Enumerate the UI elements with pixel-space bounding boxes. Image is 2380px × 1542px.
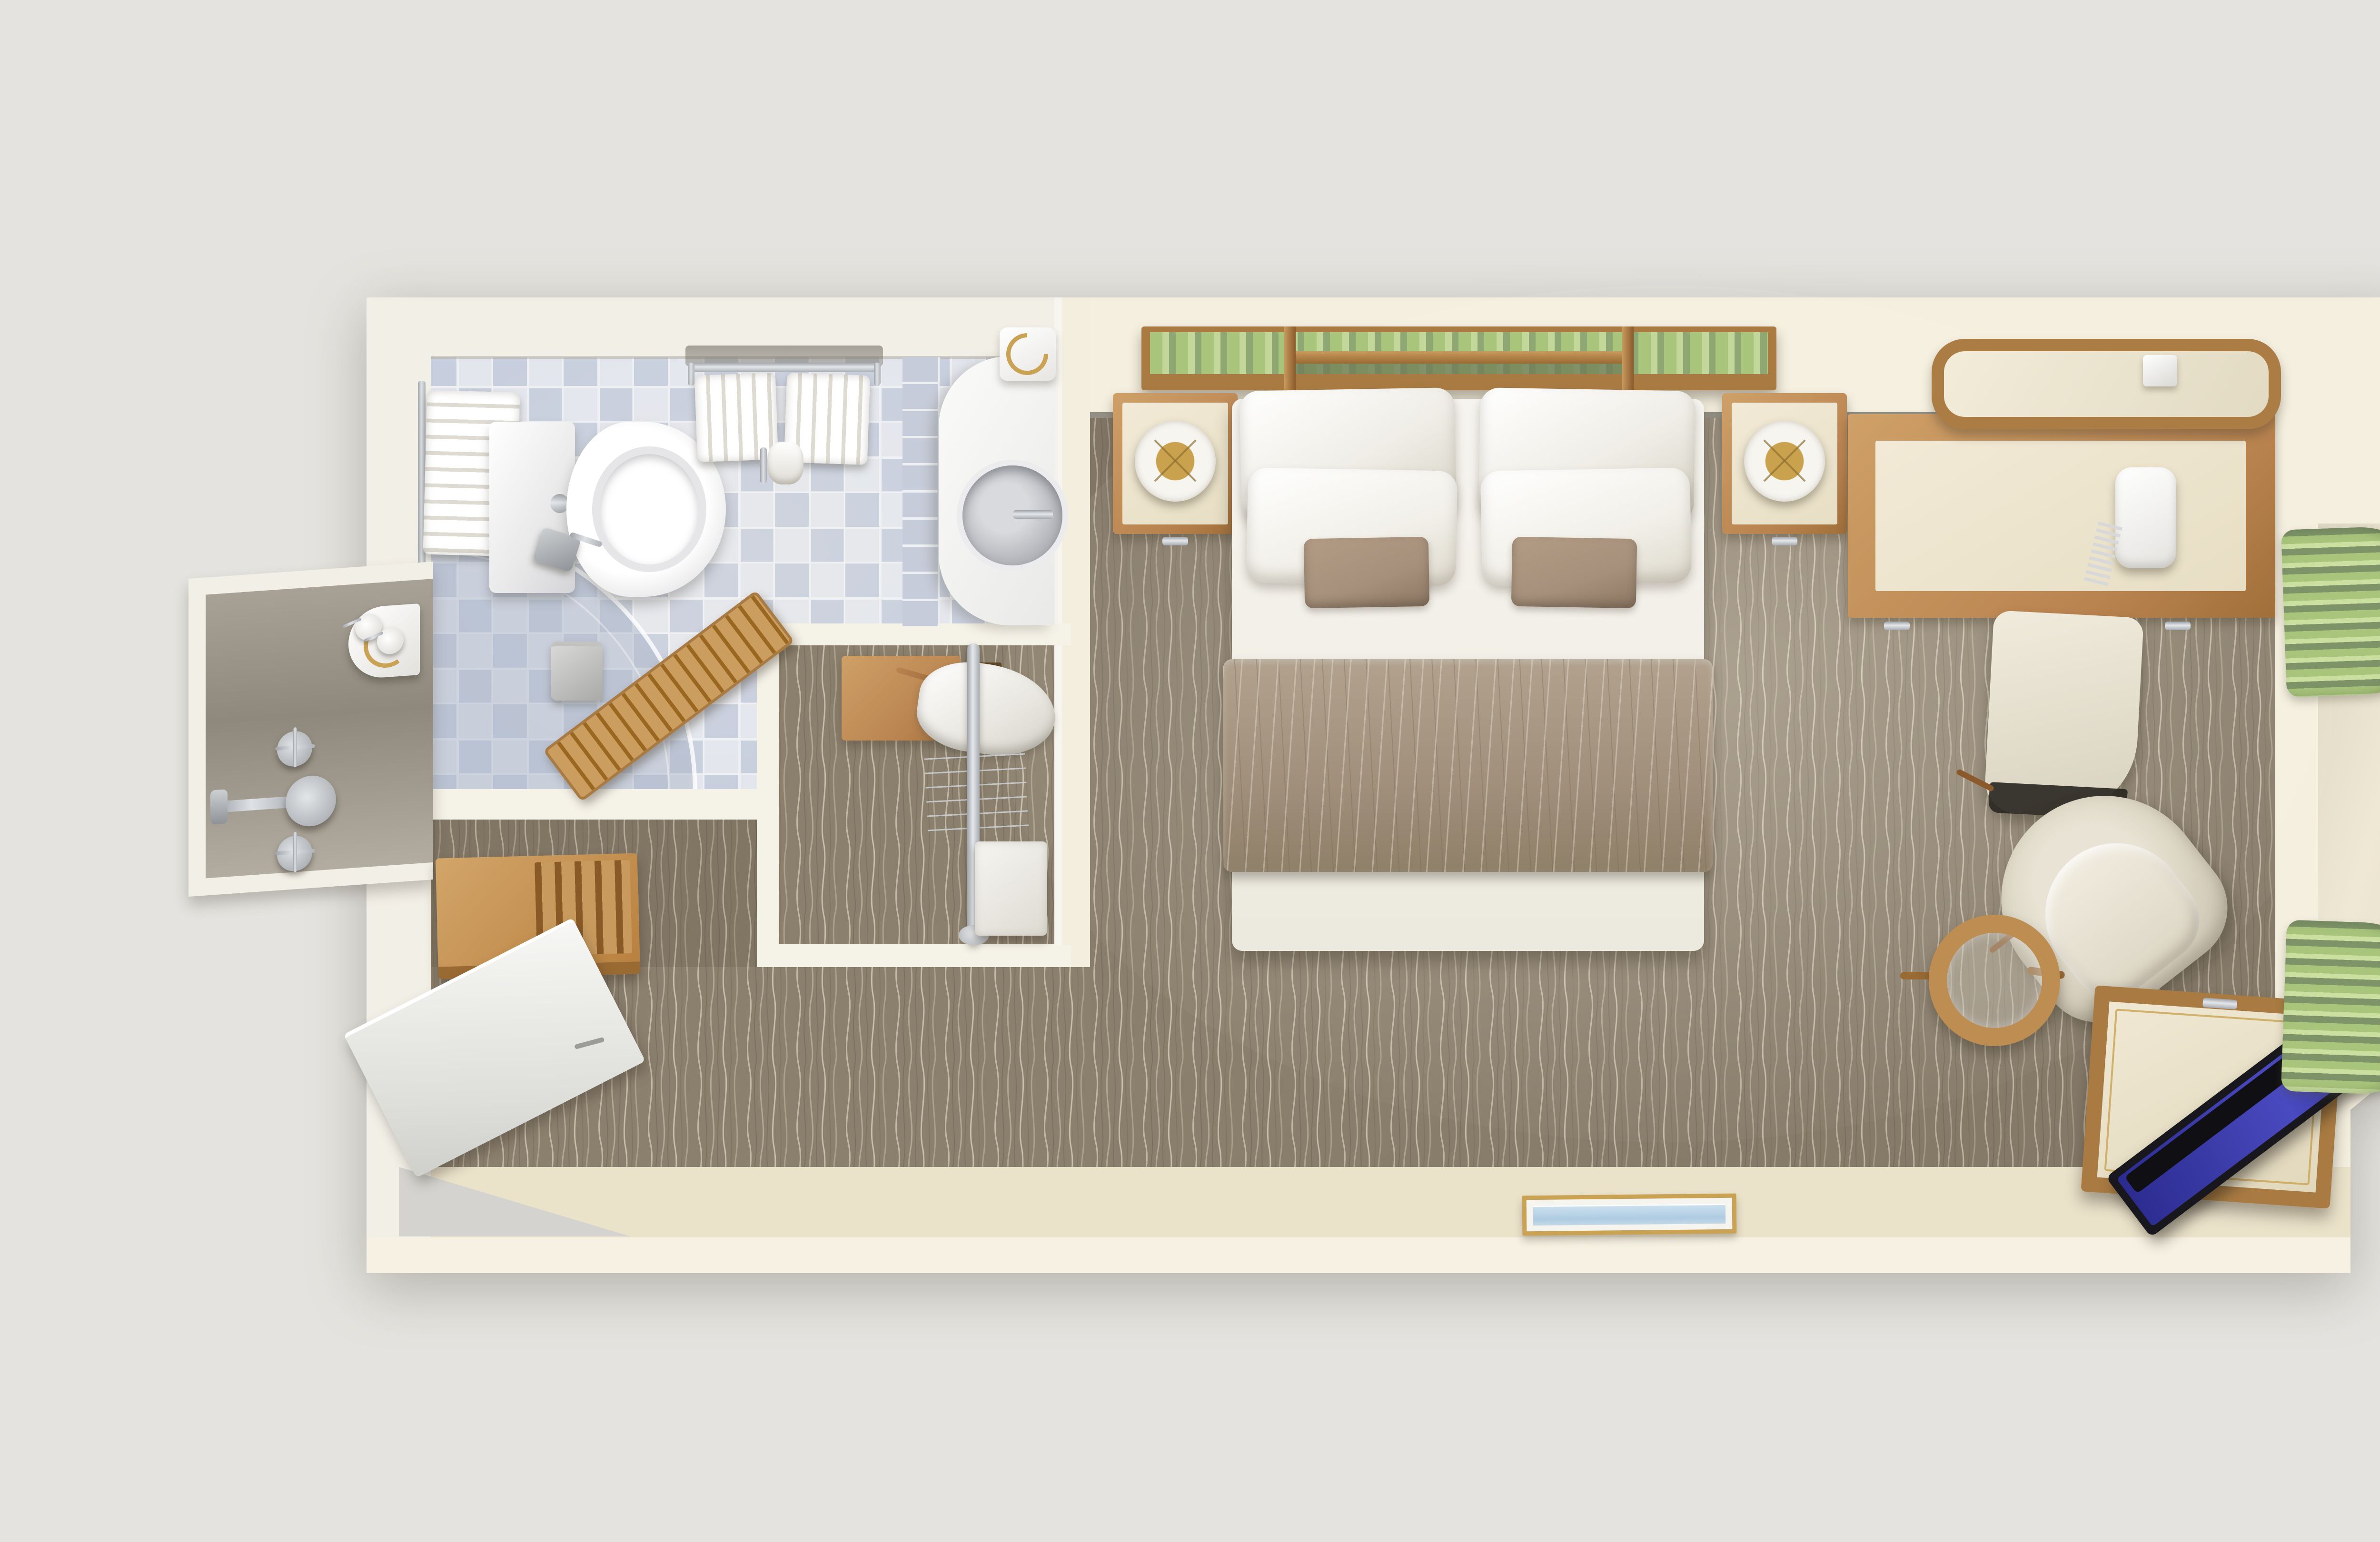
toilet — [489, 422, 727, 603]
drawer-handle — [1772, 537, 1797, 545]
nightstand-left — [1113, 393, 1238, 534]
closet-wall-bottom — [757, 945, 1072, 967]
nightstand-right — [1722, 393, 1847, 534]
towel-shelf-bracket — [874, 363, 881, 385]
wall-control-panel — [2143, 355, 2177, 386]
scene — [0, 0, 2380, 1542]
curtain-stack-bottom — [2281, 919, 2380, 1096]
curtain-stack-top — [2281, 524, 2380, 697]
towel-shelf-rail — [688, 363, 881, 372]
double-bed — [1232, 385, 1704, 951]
art-image — [1533, 1204, 1725, 1226]
accent-pillow — [1511, 537, 1637, 609]
faucet — [1013, 510, 1053, 519]
towel-shelf-bracket — [688, 363, 694, 385]
drawer-handle — [1162, 537, 1188, 545]
telephone — [2115, 467, 2176, 568]
storage-box — [975, 841, 1047, 936]
cabinet-handle — [2202, 998, 2237, 1009]
runner-pattern — [1223, 659, 1713, 872]
toilet-seat-ring — [592, 446, 706, 572]
desk-top — [1875, 441, 2246, 591]
desk — [1848, 414, 2275, 618]
drawer-handle — [1884, 622, 1910, 630]
headboard-center-panel — [1296, 364, 1622, 374]
headboard-center-rail — [1296, 351, 1622, 364]
bottom-wall-band — [367, 1237, 2350, 1273]
mixer-pipe — [217, 796, 293, 813]
wall-mirror — [1932, 339, 2281, 429]
bottom-floor-strip — [431, 1167, 2350, 1237]
closet-wall-top — [757, 623, 1072, 645]
vanity-wall-tiles — [902, 357, 940, 626]
shower-alcove — [188, 562, 433, 897]
door-handle — [574, 1037, 605, 1049]
toilet-paper-roll — [767, 442, 803, 484]
wall-art — [1522, 1194, 1737, 1236]
table-lamp — [1744, 421, 1825, 502]
mixer-flange — [210, 789, 228, 825]
headboard — [1141, 326, 1776, 390]
accent-pillow — [1304, 537, 1430, 609]
side-table — [1929, 915, 2060, 1046]
closet-wall-left — [757, 623, 779, 967]
valve-cross — [293, 832, 297, 872]
toilet-paper-arm — [760, 447, 767, 484]
valve-cross — [293, 727, 297, 768]
headboard-post — [1622, 326, 1634, 390]
drawer-handle — [2165, 622, 2191, 630]
bed-runner — [1223, 659, 1713, 872]
table-lamp — [1135, 421, 1216, 502]
headboard-post — [1284, 326, 1296, 390]
waste-bin — [551, 642, 603, 701]
mixer-body — [286, 774, 336, 828]
